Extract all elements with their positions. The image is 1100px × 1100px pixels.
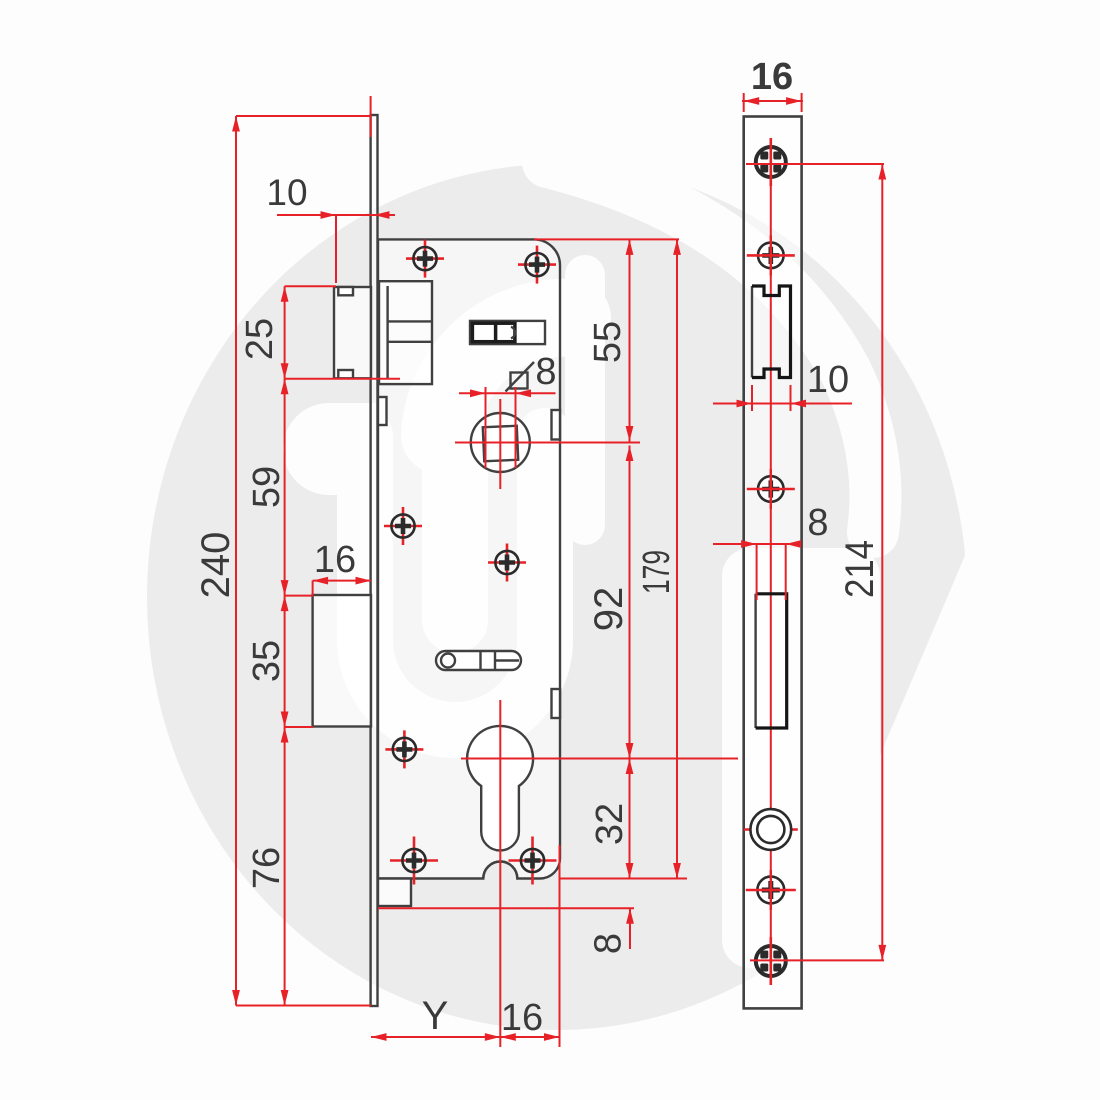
svg-text:76: 76 — [246, 847, 288, 889]
svg-text:16: 16 — [314, 539, 356, 581]
svg-text:179: 179 — [636, 550, 678, 594]
svg-text:8: 8 — [588, 933, 630, 954]
svg-text:16: 16 — [751, 56, 793, 98]
svg-text:240: 240 — [194, 532, 238, 599]
svg-text:214: 214 — [838, 540, 882, 598]
svg-text:10: 10 — [266, 172, 307, 213]
svg-text:Y: Y — [422, 994, 449, 1038]
svg-text:59: 59 — [246, 466, 288, 508]
svg-text:32: 32 — [589, 803, 631, 845]
svg-text:25: 25 — [239, 318, 281, 360]
svg-text:55: 55 — [587, 321, 629, 363]
svg-text:35: 35 — [246, 640, 288, 682]
svg-text:10: 10 — [807, 359, 849, 401]
svg-text:92: 92 — [587, 587, 631, 632]
svg-text:16: 16 — [501, 997, 543, 1039]
svg-text:8: 8 — [807, 502, 828, 544]
svg-text:8: 8 — [535, 351, 556, 393]
